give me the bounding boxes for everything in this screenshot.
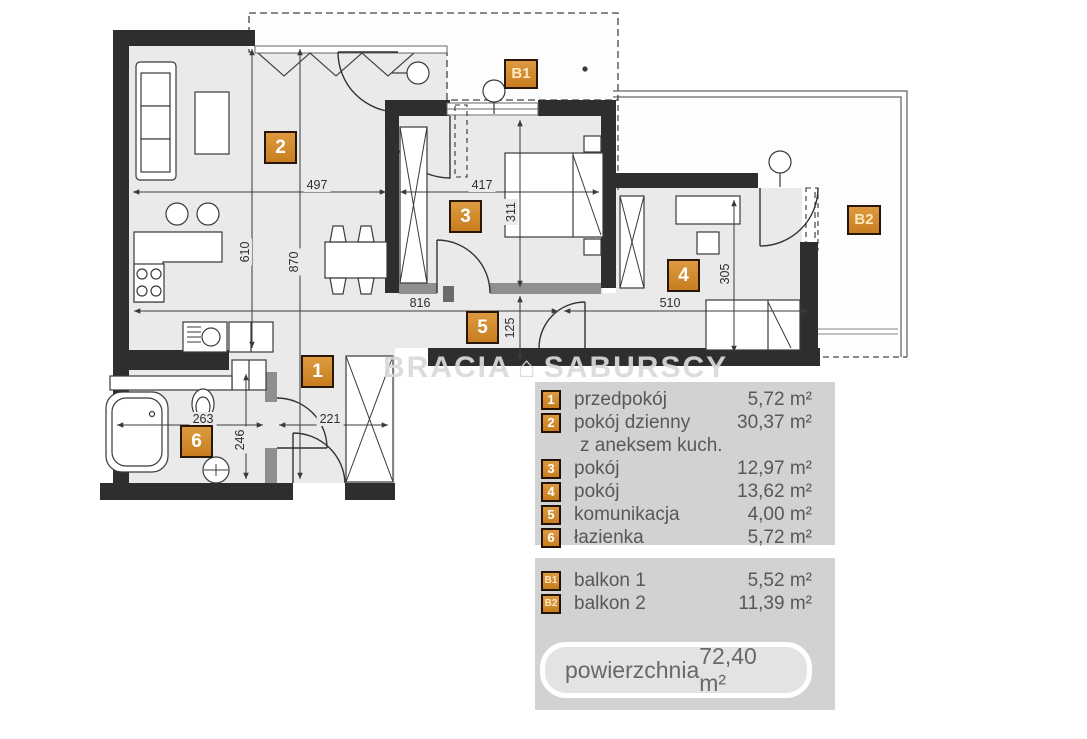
partition-room3-south-stub: [399, 283, 437, 294]
room-marker-4: 4: [667, 259, 700, 292]
partition-bath-jamb-south: [265, 448, 277, 483]
stove: [134, 264, 164, 302]
legend-room-name: komunikacja: [574, 504, 748, 526]
legend-row: z aneksem kuch.: [535, 434, 835, 457]
bed-room4: [706, 300, 800, 350]
dim-label-497: 497: [304, 178, 331, 192]
dim-label-510: 510: [657, 296, 684, 310]
legend-room-name: pokój: [574, 481, 737, 503]
dim-label-870: 870: [287, 249, 301, 276]
legend-balcony-name: balkon 1: [574, 570, 748, 592]
legend-badge-2: 2: [541, 413, 561, 433]
legend-badge-4: 4: [541, 482, 561, 502]
watermark-part2: SABURSCY: [544, 351, 728, 384]
legend-badge-3: 3: [541, 459, 561, 479]
legend-row: 4 pokój 13,62 m²: [535, 480, 835, 503]
legend-room-area: 4,00 m²: [748, 504, 812, 526]
total-area-label: powierzchnia: [565, 657, 699, 684]
bathtub: [106, 392, 168, 472]
legend-row: 6 łazienka 5,72 m²: [535, 526, 835, 549]
wall-room4-east: [800, 242, 818, 366]
legend-row: 1 przedpokój 5,72 m²: [535, 388, 835, 411]
legend-room-area: 13,62 m²: [737, 481, 812, 503]
room-marker-6: 6: [180, 425, 213, 458]
cabinet-hall: [232, 360, 266, 390]
kitchen-sink: [183, 322, 227, 352]
legend-row: 2 pokój dzienny 30,37 m²: [535, 411, 835, 434]
sofa: [136, 62, 176, 180]
legend-room-area: 5,72 m²: [748, 389, 812, 411]
floor-plan-page: 497 417 610 870 311 816 510 125 305 263 …: [0, 0, 1087, 739]
room-marker-5: 5: [466, 311, 499, 344]
legend-rooms-panel: 1 przedpokój 5,72 m² 2 pokój dzienny 30,…: [535, 382, 835, 545]
legend-balcony-area: 11,39 m²: [738, 593, 812, 615]
watermark-part1: BRACIA: [383, 351, 512, 384]
legend-badge-b1: B1: [541, 571, 561, 591]
watermark-logo-icon: ⌂: [518, 351, 538, 384]
room-marker-3: 3: [449, 200, 482, 233]
dim-label-305: 305: [718, 261, 732, 288]
dim-label-610: 610: [238, 239, 252, 266]
wardrobe-room3: [400, 127, 427, 283]
balcony-marker-b1: B1: [504, 59, 538, 89]
door-jamb-corridor: [443, 286, 454, 302]
kitchen-cabinet: [229, 322, 273, 352]
wall-room4-north: [616, 173, 758, 188]
legend-row: 3 pokój 12,97 m²: [535, 457, 835, 480]
room-marker-1: 1: [301, 355, 334, 388]
legend-balcony-area: 5,52 m²: [748, 570, 812, 592]
wall-bottom-west: [100, 483, 293, 500]
watermark: BRACIA⌂SABURSCY: [383, 351, 728, 385]
legend-badge-1: 1: [541, 390, 561, 410]
legend-room-area: 30,37 m²: [737, 412, 812, 434]
total-area-box: powierzchnia 72,40 m²: [540, 642, 812, 698]
legend-room-name: łazienka: [574, 527, 748, 549]
dim-label-125: 125: [503, 315, 517, 342]
bathroom-vanity: [110, 376, 232, 390]
desk-room4: [676, 196, 740, 224]
side-table-room4: [697, 232, 719, 254]
legend-row: 5 komunikacja 4,00 m²: [535, 503, 835, 526]
wall-bottom-east: [345, 483, 395, 500]
coffee-table: [195, 92, 229, 154]
dim-label-246: 246: [233, 427, 247, 454]
legend-balcony-name: balkon 2: [574, 593, 738, 615]
dim-label-816: 816: [407, 296, 434, 310]
legend-room-name-line2: z aneksem kuch.: [541, 435, 812, 457]
legend-room-name: pokój dzienny: [574, 412, 737, 434]
total-area-value: 72,40 m²: [699, 643, 787, 697]
dim-label-417: 417: [469, 178, 496, 192]
partition-room3-south: [490, 283, 601, 294]
wardrobe-room4: [620, 196, 644, 288]
legend-badge-6: 6: [541, 528, 561, 548]
legend-room-area: 5,72 m²: [748, 527, 812, 549]
room-marker-2: 2: [264, 131, 297, 164]
legend-balconies-panel: B1 balkon 1 5,52 m² B2 balkon 2 11,39 m²…: [535, 558, 835, 710]
legend-room-area: 12,97 m²: [737, 458, 812, 480]
washbasin: [203, 457, 229, 483]
balcony-marker-b2: B2: [847, 205, 881, 235]
legend-row: B1 balkon 1 5,52 m²: [535, 569, 835, 592]
dim-label-221: 221: [317, 412, 344, 426]
bar-stool: [166, 203, 188, 225]
dim-label-263: 263: [190, 412, 217, 426]
bar-stool: [197, 203, 219, 225]
legend-badge-5: 5: [541, 505, 561, 525]
legend-badge-b2: B2: [541, 594, 561, 614]
legend-room-name: przedpokój: [574, 389, 748, 411]
dim-label-311: 311: [504, 199, 518, 225]
partition-bath-jamb-north: [265, 372, 277, 402]
legend-row: B2 balkon 2 11,39 m²: [535, 592, 835, 615]
wall-top: [113, 30, 255, 46]
wall-kitchen-bath: [129, 350, 229, 370]
legend-room-name: pokój: [574, 458, 737, 480]
